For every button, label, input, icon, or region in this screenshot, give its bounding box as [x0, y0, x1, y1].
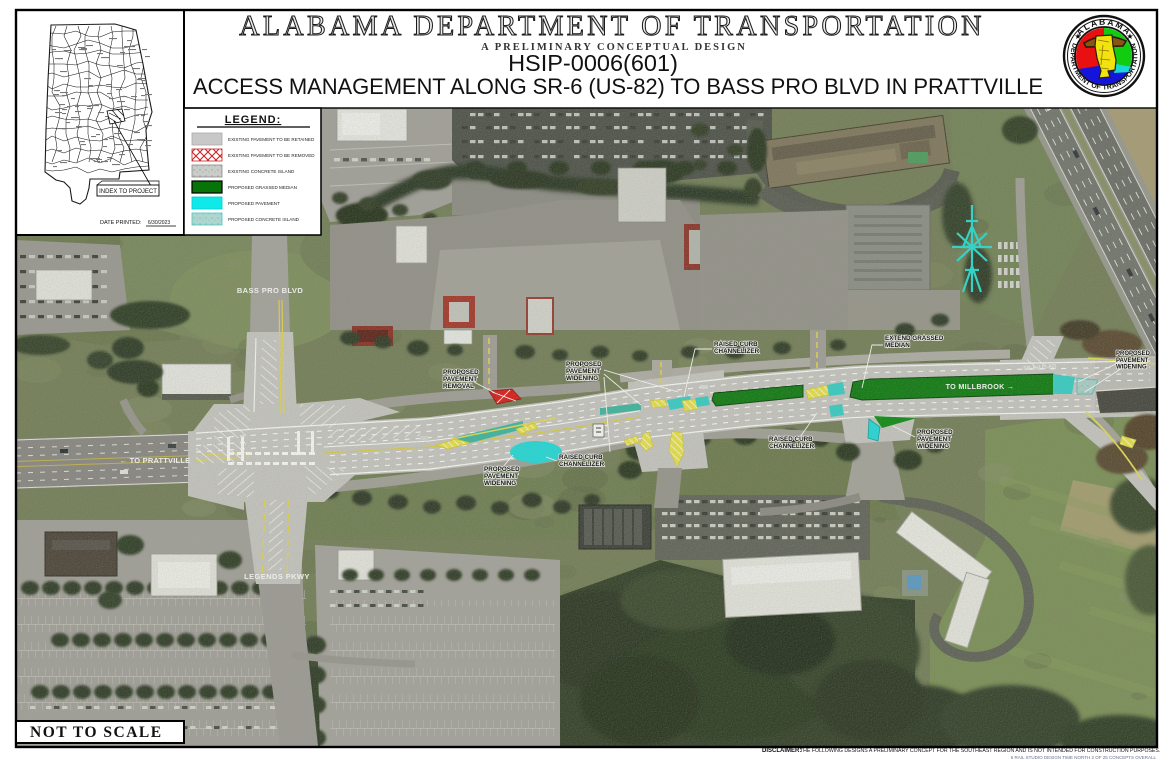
svg-text:HSIP-0006(601): HSIP-0006(601): [508, 50, 678, 76]
svg-text:PROPOSED CONCRETE ISLAND: PROPOSED CONCRETE ISLAND: [228, 217, 300, 222]
svg-text:DATE PRINTED:: DATE PRINTED:: [100, 220, 142, 226]
svg-text:★: ★: [1126, 32, 1133, 41]
svg-text:EXISTING CONCRETE ISLAND: EXISTING CONCRETE ISLAND: [228, 169, 295, 174]
svg-text:6 RAIL STUDIO DESIGN TIME NORT: 6 RAIL STUDIO DESIGN TIME NORTH 2 OF 25 …: [1011, 755, 1157, 760]
svg-text:NOT TO SCALE: NOT TO SCALE: [30, 724, 163, 741]
svg-text:★: ★: [1074, 32, 1081, 41]
svg-text:PROPOSED GRASSED MEDIAN: PROPOSED GRASSED MEDIAN: [228, 185, 297, 190]
svg-text:ACCESS MANAGEMENT ALONG SR-6 (: ACCESS MANAGEMENT ALONG SR-6 (US-82) TO …: [193, 74, 1043, 99]
svg-text:THE FOLLOWING DESIGNS A PRELIM: THE FOLLOWING DESIGNS A PRELIMINARY CONC…: [800, 748, 1160, 754]
svg-text:6/30/2023: 6/30/2023: [148, 220, 170, 226]
svg-text:EXISTING PAVEMENT TO BE RETAIN: EXISTING PAVEMENT TO BE RETAINED: [228, 137, 315, 142]
svg-text:LEGEND:: LEGEND:: [225, 114, 282, 126]
svg-text:ALABAMA DEPARTMENT OF TRANSPOR: ALABAMA DEPARTMENT OF TRANSPORTATION: [239, 11, 985, 42]
svg-text:DISCLAIMER:: DISCLAIMER:: [762, 748, 801, 754]
svg-text:EXISTING PAVEMENT TO BE REMOVE: EXISTING PAVEMENT TO BE REMOVED: [228, 153, 315, 158]
svg-text:INDEX TO PROJECT: INDEX TO PROJECT: [99, 189, 157, 195]
svg-text:PROPOSED PAVEMENT: PROPOSED PAVEMENT: [228, 201, 280, 206]
